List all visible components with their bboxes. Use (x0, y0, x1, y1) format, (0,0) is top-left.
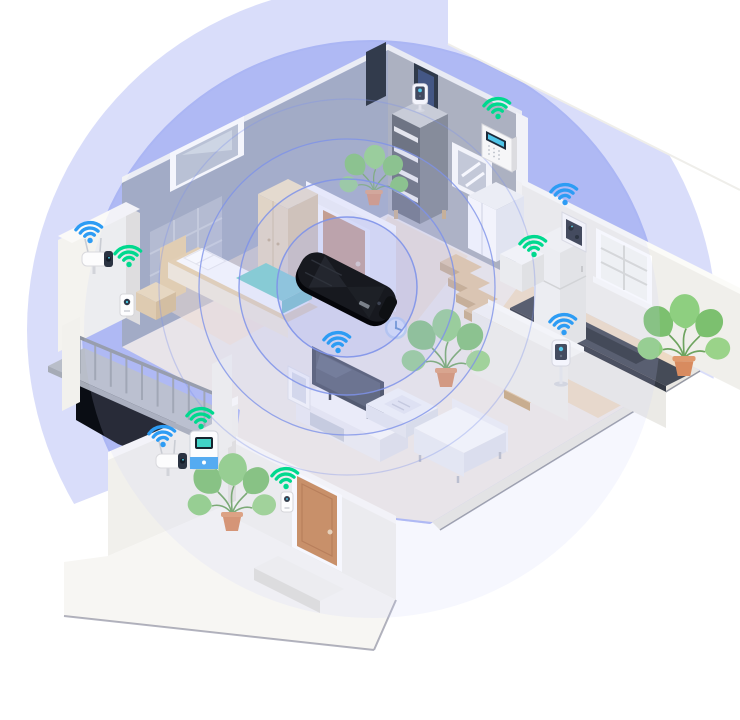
smart-doorbell-station (190, 431, 218, 469)
coverage-rings (84, 42, 660, 618)
smart-home-illustration (0, 0, 740, 720)
video-doorbell (281, 492, 293, 512)
balcony-column-left (62, 317, 80, 411)
motion-sensor (120, 294, 134, 316)
